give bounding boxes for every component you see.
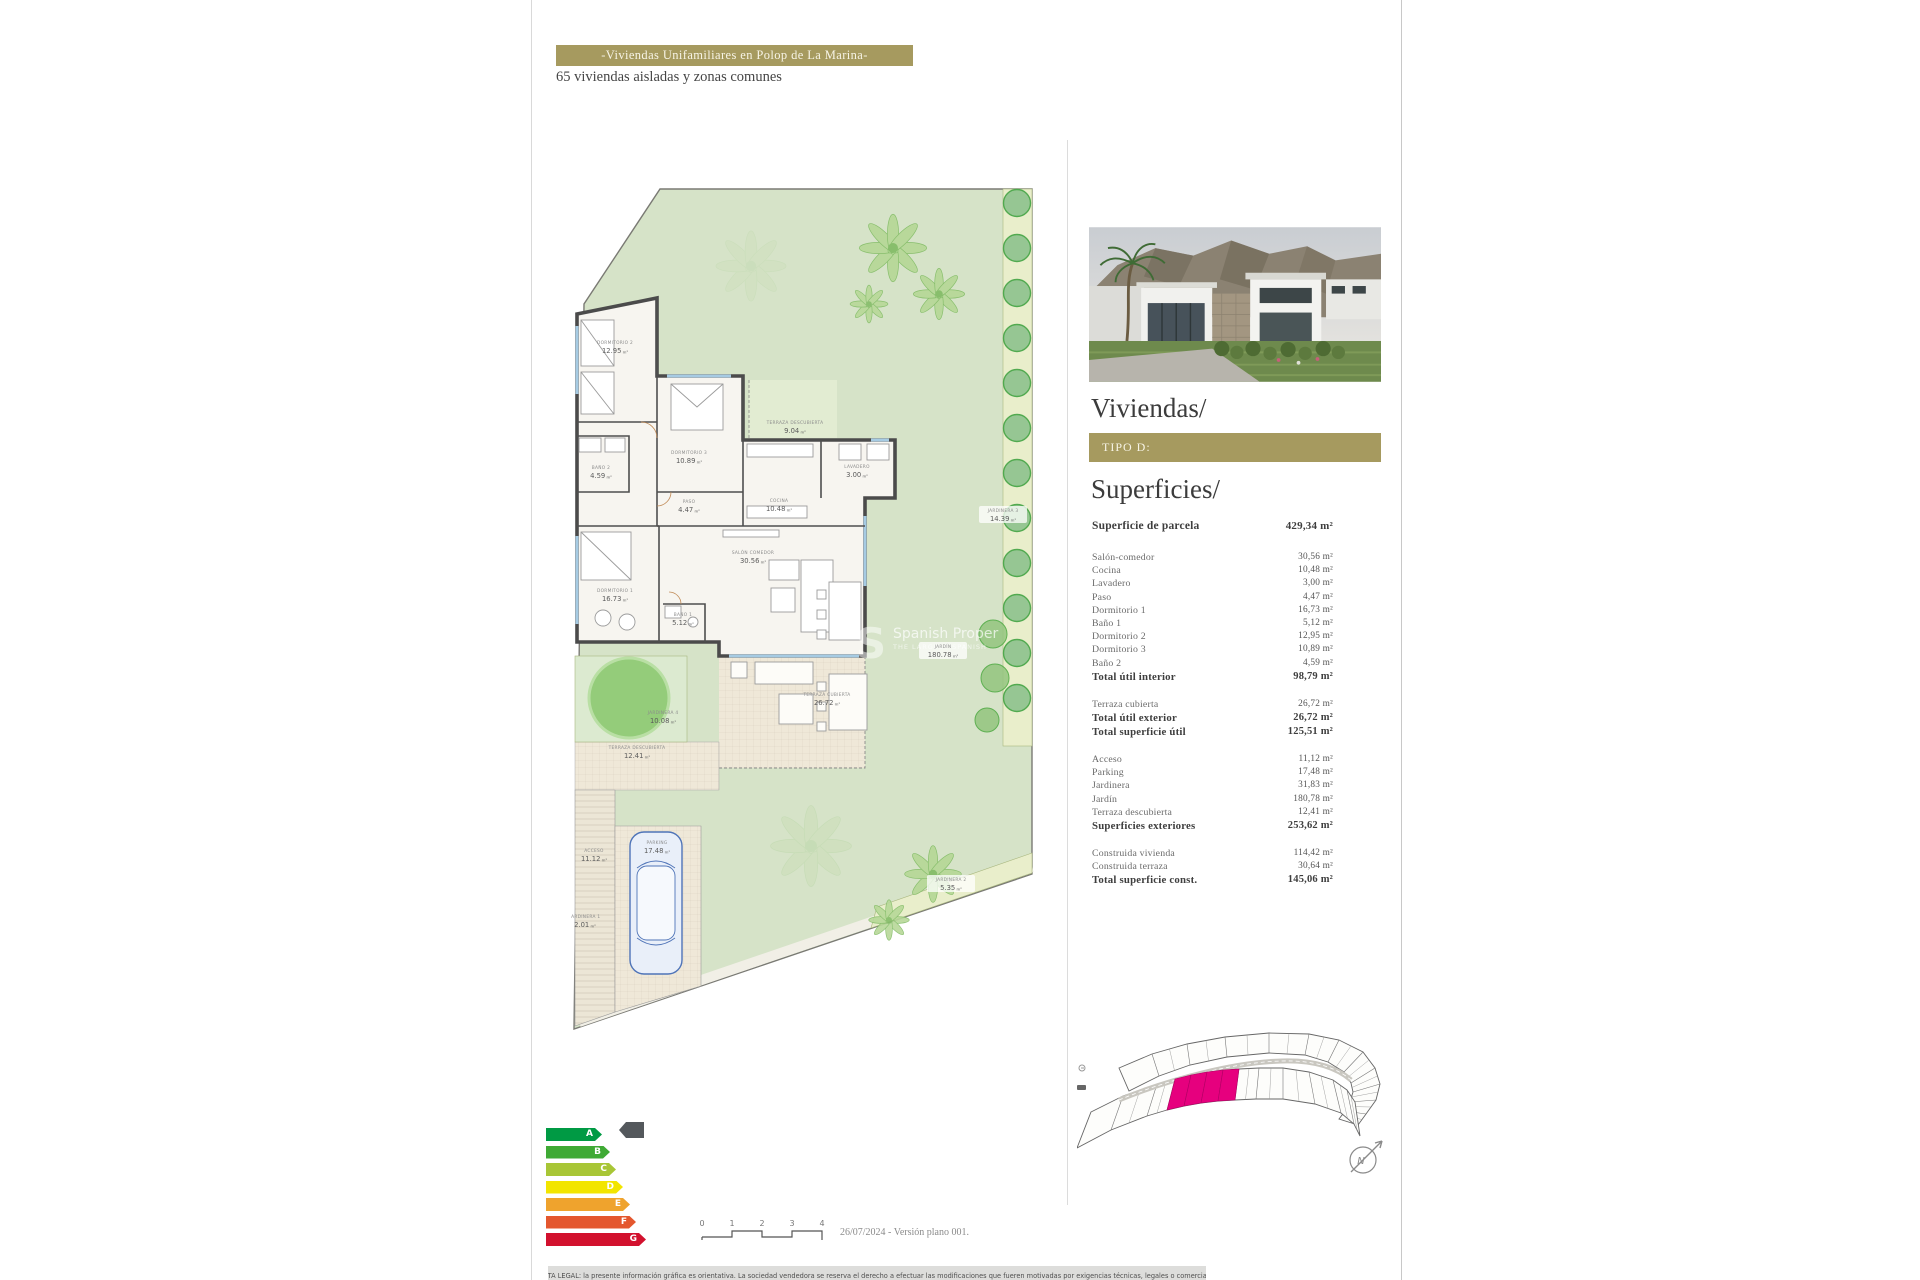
- surface-row: Superficie de parcela429,34 m²: [1092, 518, 1333, 534]
- project-title: -Viviendas Unifamiliares en Polop de La …: [601, 48, 868, 63]
- shrub-circle: [1004, 595, 1031, 622]
- room-name: TERRAZA DESCUBIERTA: [766, 420, 824, 426]
- surface-row: Baño 24,59 m²: [1092, 657, 1333, 670]
- surface-label: Jardín: [1092, 793, 1117, 806]
- surface-label: Total superficie const.: [1092, 873, 1197, 887]
- shrub-circle: [1004, 280, 1031, 307]
- energy-band-a: A: [546, 1128, 602, 1141]
- surface-label: Acceso: [1092, 753, 1122, 766]
- compass: N: [1350, 1141, 1382, 1173]
- surface-row: Total superficie const.145,06 m²: [1092, 873, 1333, 887]
- energy-band-letter: F: [621, 1216, 636, 1229]
- page-border-left: [531, 0, 532, 1280]
- room-name: DORMITORIO 2: [597, 340, 633, 346]
- surface-value: 114,42 m²: [1294, 847, 1333, 860]
- surface-row: Superficies exteriores253,62 m²: [1092, 819, 1333, 833]
- surface-label: Construida vivienda: [1092, 847, 1175, 860]
- palm-tree-plan: [913, 268, 964, 319]
- surface-label: Construida terraza: [1092, 860, 1168, 873]
- surface-value: 125,51 m²: [1288, 725, 1333, 739]
- energy-band-letter: C: [600, 1163, 616, 1176]
- surface-row: Dormitorio 116,73 m²: [1092, 604, 1333, 617]
- shrub-circle: [1004, 640, 1031, 667]
- date-version: 26/07/2024 - Versión plano 001.: [840, 1227, 969, 1238]
- surface-label: Total superficie útil: [1092, 725, 1186, 739]
- jardinera-4-zone: [575, 656, 687, 742]
- surface-value: 12,95 m²: [1298, 630, 1333, 643]
- surface-label: Dormitorio 3: [1092, 643, 1146, 656]
- energy-band-letter: B: [594, 1146, 610, 1159]
- villa-photo: [1089, 224, 1381, 385]
- surface-value: 5,12 m²: [1303, 617, 1333, 630]
- surface-label: Terraza cubierta: [1092, 698, 1158, 711]
- room-name: PARKING: [647, 840, 668, 846]
- surface-row: Cocina10,48 m²: [1092, 564, 1333, 577]
- watermark-initial: S: [856, 619, 886, 668]
- surface-row: Salón-comedor30,56 m²: [1092, 551, 1333, 564]
- room-name: ACCESO: [584, 848, 604, 854]
- palm-tree-plan: [850, 285, 888, 323]
- energy-band-letter: D: [607, 1181, 623, 1194]
- surface-row: Terraza cubierta26,72 m²: [1092, 698, 1333, 711]
- surface-row: Acceso11,12 m²: [1092, 753, 1333, 766]
- surface-label: Jardinera: [1092, 779, 1130, 792]
- surface-label: Baño 1: [1092, 617, 1121, 630]
- compass-north-label: N: [1357, 1156, 1365, 1167]
- surface-label: Salón-comedor: [1092, 551, 1154, 564]
- tipo-bar: TIPO D:: [1089, 433, 1381, 462]
- surface-value: 30,56 m²: [1298, 551, 1333, 564]
- shrub-circle: [1004, 460, 1031, 487]
- surface-row: Dormitorio 212,95 m²: [1092, 630, 1333, 643]
- scale-tick: 1: [729, 1219, 734, 1228]
- surface-group: Salón-comedor30,56 m²Cocina10,48 m²Lavad…: [1092, 551, 1333, 684]
- energy-band-f: F: [546, 1216, 636, 1229]
- room-name: SALÓN COMEDOR: [732, 549, 774, 556]
- surface-label: Parking: [1092, 766, 1124, 779]
- surface-value: 31,83 m²: [1298, 779, 1333, 792]
- energy-band-letter: A: [586, 1128, 602, 1141]
- shrub-circle: [1004, 235, 1031, 262]
- surface-label: Superficies exteriores: [1092, 819, 1195, 833]
- shrub-circle: [1004, 415, 1031, 442]
- site-plan: N: [1077, 1028, 1397, 1188]
- surface-label: Baño 2: [1092, 657, 1121, 670]
- surface-group: Superficie de parcela429,34 m²: [1092, 518, 1333, 534]
- surface-group: Acceso11,12 m²Parking17,48 m²Jardinera31…: [1092, 753, 1333, 833]
- surface-value: 26,72 m²: [1293, 711, 1333, 725]
- energy-band-d: D: [546, 1181, 623, 1194]
- surface-row: Lavadero3,00 m²: [1092, 577, 1333, 590]
- surface-label: Lavadero: [1092, 577, 1131, 590]
- energy-band-g: G: [546, 1233, 646, 1246]
- document-page: -Viviendas Unifamiliares en Polop de La …: [0, 0, 1920, 1280]
- surface-value: 253,62 m²: [1288, 819, 1333, 833]
- room-name: BAÑO 1: [674, 611, 692, 618]
- surface-label: Terraza descubierta: [1092, 806, 1172, 819]
- room-name: JARDINERA 1: [571, 914, 600, 920]
- scale-tick: 4: [819, 1219, 824, 1228]
- surface-value: 429,34 m²: [1286, 518, 1333, 534]
- surface-row: Parking17,48 m²: [1092, 766, 1333, 779]
- energy-rating-chart: ABCDEFG: [546, 1128, 646, 1251]
- palm-tree-plan: [771, 806, 852, 887]
- surface-value: 4,47 m²: [1303, 591, 1333, 604]
- tipo-label: TIPO D:: [1089, 440, 1151, 455]
- siteplan-icons: [1077, 1065, 1086, 1090]
- surface-value: 30,64 m²: [1298, 860, 1333, 873]
- room-name: PASO: [683, 499, 696, 505]
- surface-row: Jardín180,78 m²: [1092, 793, 1333, 806]
- room-name: JARDINERA 4: [647, 710, 679, 716]
- energy-band-letter: G: [630, 1233, 646, 1246]
- room-name: JARDÍN: [934, 643, 952, 650]
- surface-row: Terraza descubierta12,41 m²: [1092, 806, 1333, 819]
- energy-band-c: C: [546, 1163, 616, 1176]
- shrub-circle: [1004, 685, 1031, 712]
- room-name: LAVADERO: [844, 464, 870, 470]
- viviendas-heading: Viviendas/: [1091, 393, 1206, 424]
- surface-value: 180,78 m²: [1293, 793, 1333, 806]
- surfaces-table: Superficie de parcela429,34 m²Salón-come…: [1092, 518, 1333, 887]
- surface-row: Total útil exterior26,72 m²: [1092, 711, 1333, 725]
- energy-band-b: B: [546, 1146, 610, 1159]
- floor-plan: S Spanish Proper THE LARGEST SPANISH DOR…: [571, 186, 1035, 1030]
- scale-bar: 01234: [698, 1218, 838, 1246]
- shrub-circle: [1004, 370, 1031, 397]
- room-name: TERRAZA CUBIERTA: [802, 692, 850, 698]
- surface-group: Terraza cubierta26,72 m²Total útil exter…: [1092, 698, 1333, 739]
- surface-row: Total superficie útil125,51 m²: [1092, 725, 1333, 739]
- surface-row: Construida terraza30,64 m²: [1092, 860, 1333, 873]
- room-name: BAÑO 2: [592, 464, 610, 471]
- shrub-circle: [1004, 325, 1031, 352]
- surface-row: Construida vivienda114,42 m²: [1092, 847, 1333, 860]
- surface-value: 16,73 m²: [1298, 604, 1333, 617]
- surface-value: 17,48 m²: [1298, 766, 1333, 779]
- surface-row: Paso4,47 m²: [1092, 591, 1333, 604]
- palm-tree-plan: [716, 231, 786, 301]
- surface-row: Jardinera31,83 m²: [1092, 779, 1333, 792]
- project-subtitle: 65 viviendas aisladas y zonas comunes: [556, 69, 782, 86]
- shrub-circle: [1004, 190, 1031, 217]
- energy-band-e: E: [546, 1198, 630, 1211]
- surface-label: Paso: [1092, 591, 1111, 604]
- palm-tree-plan: [905, 846, 962, 903]
- column-divider: [1067, 140, 1068, 1205]
- surface-value: 10,48 m²: [1298, 564, 1333, 577]
- surface-label: Dormitorio 1: [1092, 604, 1146, 617]
- surface-row: Dormitorio 310,89 m²: [1092, 643, 1333, 656]
- scale-tick: 0: [699, 1219, 704, 1228]
- room-name: DORMITORIO 3: [671, 450, 707, 456]
- surface-group: Construida vivienda114,42 m²Construida t…: [1092, 847, 1333, 887]
- surface-label: Total útil interior: [1092, 670, 1176, 684]
- surface-label: Cocina: [1092, 564, 1121, 577]
- room-name: JARDINERA 3: [987, 508, 1019, 514]
- surface-value: 10,89 m²: [1298, 643, 1333, 656]
- palm-tree-plan: [869, 900, 910, 941]
- page-border-right: [1401, 0, 1402, 1280]
- surface-label: Total útil exterior: [1092, 711, 1177, 725]
- room-name: DORMITORIO 1: [597, 588, 633, 594]
- surface-label: Dormitorio 2: [1092, 630, 1146, 643]
- room-name: JARDINERA 2: [935, 877, 967, 883]
- palm-tree-plan: [859, 214, 927, 282]
- surface-value: 3,00 m²: [1303, 577, 1333, 590]
- legal-text: NOTA LEGAL: la presente información gráf…: [548, 1272, 1206, 1280]
- surface-row: Baño 15,12 m²: [1092, 617, 1333, 630]
- surface-row: Total útil interior98,79 m²: [1092, 670, 1333, 684]
- legal-bar: NOTA LEGAL: la presente información gráf…: [548, 1266, 1206, 1280]
- surface-value: 12,41 m²: [1298, 806, 1333, 819]
- superficies-heading: Superficies/: [1091, 474, 1220, 505]
- scale-tick: 2: [759, 1219, 764, 1228]
- surface-value: 26,72 m²: [1298, 698, 1333, 711]
- surface-value: 11,12 m²: [1298, 753, 1333, 766]
- project-title-bar: -Viviendas Unifamiliares en Polop de La …: [556, 45, 913, 66]
- room-name: TERRAZA DESCUBIERTA: [608, 745, 666, 751]
- acceso-zone: [575, 790, 615, 1026]
- surface-value: 145,06 m²: [1288, 873, 1333, 887]
- room-name: COCINA: [770, 498, 789, 504]
- scale-tick: 3: [789, 1219, 794, 1228]
- surface-value: 98,79 m²: [1293, 670, 1333, 684]
- watermark-line1: Spanish Proper: [893, 626, 998, 642]
- surface-value: 4,59 m²: [1303, 657, 1333, 670]
- surface-label: Superficie de parcela: [1092, 518, 1199, 534]
- energy-band-letter: E: [615, 1198, 630, 1211]
- shrub-circle: [1004, 550, 1031, 577]
